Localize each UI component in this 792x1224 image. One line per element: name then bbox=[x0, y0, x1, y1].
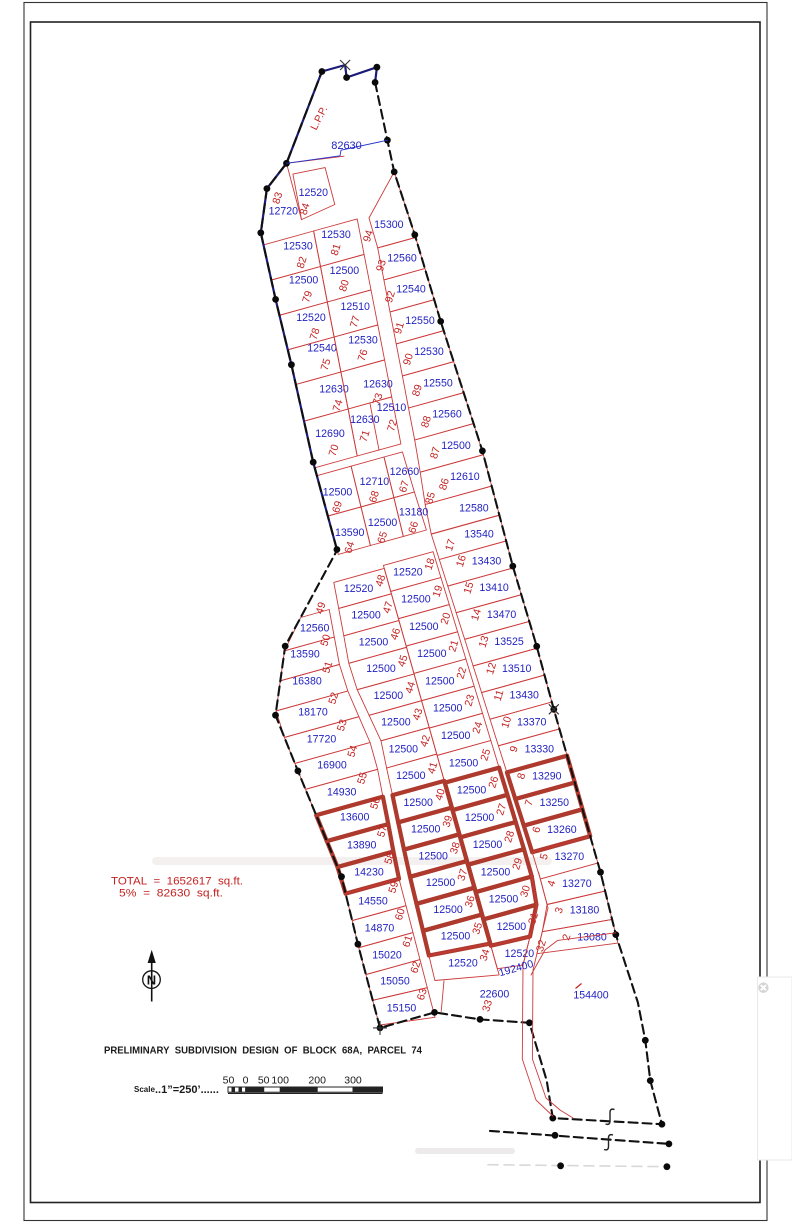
svg-text:13270: 13270 bbox=[562, 878, 592, 890]
svg-text:12500: 12500 bbox=[457, 785, 487, 797]
svg-text:12580: 12580 bbox=[459, 502, 489, 514]
svg-text:12500: 12500 bbox=[330, 265, 360, 277]
svg-text:12500: 12500 bbox=[426, 877, 456, 889]
svg-text:12500: 12500 bbox=[351, 610, 381, 622]
svg-text:12500: 12500 bbox=[409, 621, 439, 633]
svg-text:15150: 15150 bbox=[387, 1003, 417, 1015]
svg-text:16900: 16900 bbox=[317, 760, 347, 772]
svg-text:12530: 12530 bbox=[414, 346, 444, 358]
svg-text:12560: 12560 bbox=[432, 409, 462, 421]
svg-text:12500: 12500 bbox=[359, 637, 389, 649]
svg-text:12500: 12500 bbox=[418, 851, 448, 863]
svg-text:14870: 14870 bbox=[365, 923, 395, 935]
svg-text:12630: 12630 bbox=[363, 379, 393, 391]
svg-text:13430: 13430 bbox=[509, 690, 539, 702]
svg-text:16380: 16380 bbox=[292, 676, 322, 688]
svg-text:12710: 12710 bbox=[360, 476, 390, 488]
svg-text:12530: 12530 bbox=[348, 335, 378, 347]
svg-text:N: N bbox=[147, 972, 156, 987]
svg-text:14550: 14550 bbox=[358, 896, 388, 908]
svg-text:12500: 12500 bbox=[323, 486, 353, 498]
svg-text:12500: 12500 bbox=[374, 690, 404, 702]
svg-text:12500: 12500 bbox=[441, 440, 471, 452]
svg-text:12500: 12500 bbox=[411, 824, 441, 836]
svg-text:5% = 82630 sq.ft.: 5% = 82630 sq.ft. bbox=[119, 887, 223, 899]
svg-text:12520: 12520 bbox=[299, 187, 329, 199]
svg-text:12500: 12500 bbox=[417, 648, 447, 660]
svg-text:13430: 13430 bbox=[472, 555, 502, 567]
svg-text:12500: 12500 bbox=[441, 730, 471, 742]
svg-text:18170: 18170 bbox=[298, 707, 328, 719]
svg-text:13270: 13270 bbox=[555, 851, 585, 863]
svg-text:12690: 12690 bbox=[315, 428, 345, 440]
svg-text:100: 100 bbox=[271, 1075, 289, 1087]
svg-text:12500: 12500 bbox=[449, 757, 479, 769]
svg-text:12500: 12500 bbox=[433, 703, 463, 715]
svg-text:..1”=250’......: ..1”=250’...... bbox=[155, 1084, 219, 1096]
svg-text:12540: 12540 bbox=[307, 343, 337, 355]
svg-text:12520: 12520 bbox=[296, 312, 326, 324]
svg-text:12530: 12530 bbox=[321, 229, 351, 241]
svg-text:PRELIMINARY SUBDIVISION DESI: PRELIMINARY SUBDIVISION DESIGN OF BLOCK … bbox=[104, 1045, 422, 1057]
svg-text:14230: 14230 bbox=[354, 867, 384, 879]
svg-text:12500: 12500 bbox=[465, 812, 495, 824]
svg-text:12500: 12500 bbox=[441, 931, 471, 943]
svg-text:82630: 82630 bbox=[331, 140, 362, 152]
svg-text:12660: 12660 bbox=[390, 466, 420, 478]
svg-text:13510: 13510 bbox=[502, 663, 532, 675]
svg-text:13180: 13180 bbox=[399, 507, 429, 519]
svg-text:12520: 12520 bbox=[393, 566, 423, 578]
svg-text:12500: 12500 bbox=[389, 744, 419, 756]
svg-text:200: 200 bbox=[308, 1075, 326, 1087]
svg-text:12500: 12500 bbox=[366, 663, 396, 675]
svg-text:12520: 12520 bbox=[448, 958, 478, 970]
svg-text:12500: 12500 bbox=[425, 676, 455, 688]
svg-text:12500: 12500 bbox=[489, 894, 519, 906]
svg-text:15300: 15300 bbox=[374, 219, 404, 231]
svg-text:13525: 13525 bbox=[494, 636, 524, 648]
svg-text:TOTAL = 1652617 sq.ft.: TOTAL = 1652617 sq.ft. bbox=[111, 876, 243, 888]
svg-text:12510: 12510 bbox=[377, 402, 407, 414]
svg-text:13180: 13180 bbox=[570, 905, 600, 917]
svg-text:13290: 13290 bbox=[532, 770, 562, 782]
svg-text:13370: 13370 bbox=[517, 717, 547, 729]
svg-text:12500: 12500 bbox=[381, 717, 411, 729]
svg-text:12500: 12500 bbox=[433, 904, 463, 916]
svg-text:13600: 13600 bbox=[340, 812, 370, 824]
svg-text:Scale: Scale bbox=[134, 1085, 155, 1094]
svg-text:12720: 12720 bbox=[269, 206, 299, 218]
svg-text:12560: 12560 bbox=[300, 623, 330, 635]
svg-text:13590: 13590 bbox=[290, 649, 320, 661]
svg-text:12610: 12610 bbox=[450, 471, 480, 483]
svg-text:50: 50 bbox=[258, 1075, 270, 1087]
svg-text:13890: 13890 bbox=[347, 840, 377, 852]
svg-text:13590: 13590 bbox=[335, 527, 365, 539]
svg-text:12500: 12500 bbox=[497, 921, 527, 933]
svg-text:12550: 12550 bbox=[405, 315, 435, 327]
svg-text:15050: 15050 bbox=[380, 976, 410, 988]
svg-text:12530: 12530 bbox=[283, 241, 313, 253]
svg-text:12500: 12500 bbox=[401, 594, 431, 606]
svg-text:12500: 12500 bbox=[481, 866, 511, 878]
svg-text:13410: 13410 bbox=[479, 582, 509, 594]
svg-text:12630: 12630 bbox=[350, 414, 380, 426]
svg-text:15020: 15020 bbox=[372, 950, 402, 962]
svg-text:12560: 12560 bbox=[387, 253, 417, 265]
svg-text:13330: 13330 bbox=[525, 743, 555, 755]
svg-text:12500: 12500 bbox=[368, 517, 398, 529]
svg-text:13540: 13540 bbox=[464, 529, 494, 541]
svg-text:154400: 154400 bbox=[573, 990, 608, 1002]
svg-text:12500: 12500 bbox=[289, 275, 319, 287]
svg-text:17720: 17720 bbox=[307, 734, 337, 746]
svg-text:12510: 12510 bbox=[340, 301, 370, 313]
svg-text:13250: 13250 bbox=[540, 797, 570, 809]
svg-text:300: 300 bbox=[344, 1075, 362, 1087]
svg-text:50: 50 bbox=[223, 1075, 235, 1087]
svg-text:13260: 13260 bbox=[547, 824, 577, 836]
svg-text:12520: 12520 bbox=[344, 583, 374, 595]
svg-text:14930: 14930 bbox=[327, 787, 357, 799]
svg-text:12500: 12500 bbox=[473, 839, 503, 851]
svg-text:12500: 12500 bbox=[403, 797, 433, 809]
svg-text:0: 0 bbox=[243, 1075, 249, 1087]
svg-text:12500: 12500 bbox=[396, 770, 426, 782]
svg-text:13470: 13470 bbox=[487, 609, 517, 621]
svg-text:12540: 12540 bbox=[396, 284, 426, 296]
svg-text:12550: 12550 bbox=[423, 377, 453, 389]
